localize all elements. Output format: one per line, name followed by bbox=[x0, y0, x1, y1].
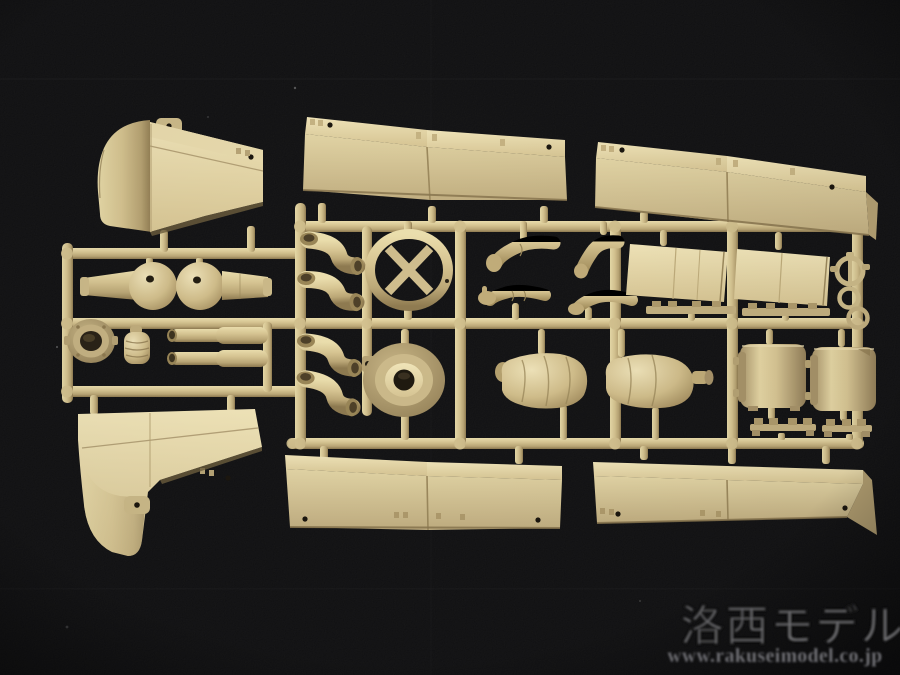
sprue-photo-canvas: 洛西モデル www.rakuseimodel.co.jp bbox=[0, 0, 900, 675]
watermark-brand-text: 洛西モデル bbox=[681, 602, 900, 652]
photo-model-kit-sprue: 洛西モデル www.rakuseimodel.co.jp bbox=[0, 0, 900, 675]
watermark-url-text: www.rakuseimodel.co.jp bbox=[667, 646, 882, 667]
watermark: 洛西モデル www.rakuseimodel.co.jp bbox=[667, 602, 900, 667]
photo-vignette bbox=[0, 0, 900, 675]
